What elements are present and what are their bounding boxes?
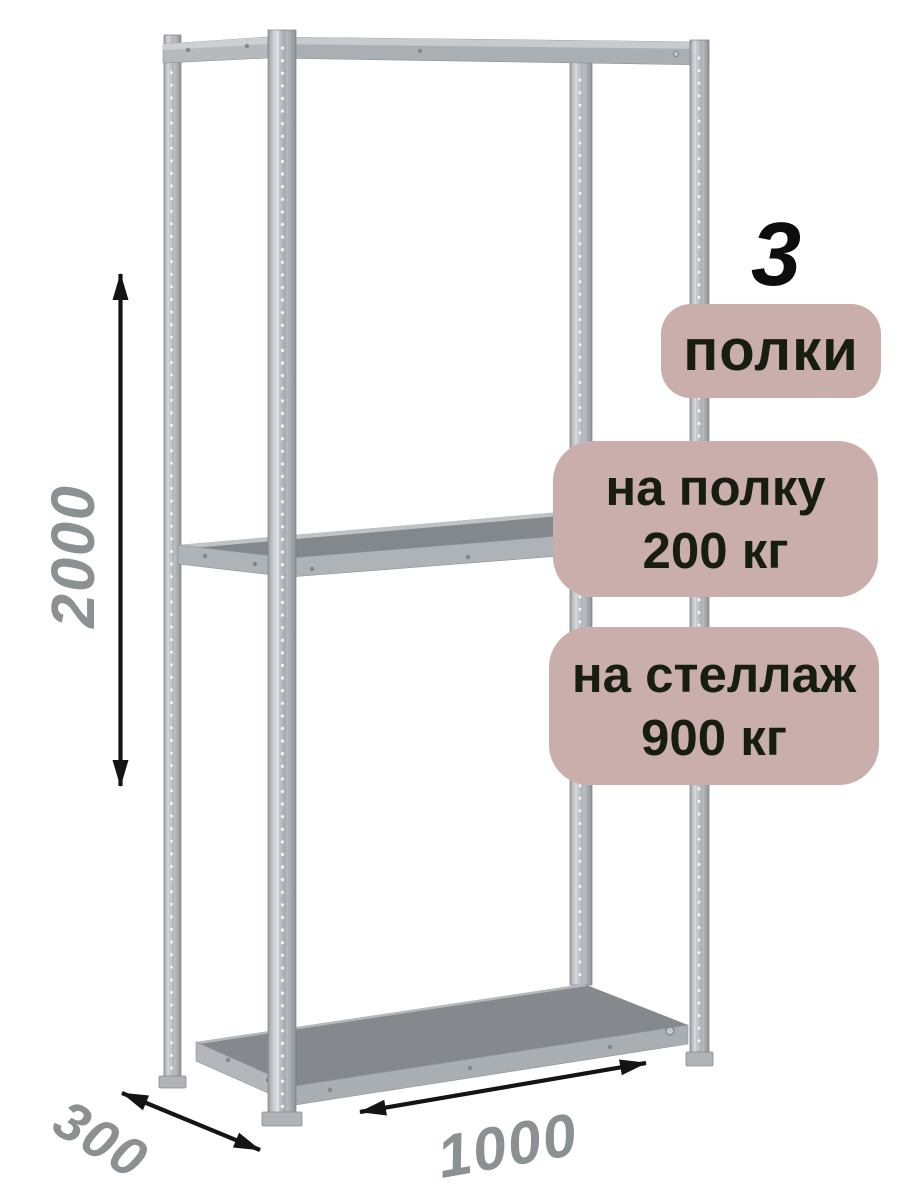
product-image: 3 полки на полку 200 кг на стеллаж 900 к… xyxy=(0,0,900,1200)
per-shelf-load-badge: на полку 200 кг xyxy=(553,441,878,597)
per-shelf-load-line1: на полку xyxy=(553,456,878,519)
rack-illustration xyxy=(0,0,900,1200)
shelf-count-badge: полки xyxy=(661,304,881,398)
post-front-left xyxy=(268,30,296,1125)
per-rack-load-line1: на стеллаж xyxy=(549,643,879,706)
per-rack-load-line2: 900 кг xyxy=(549,706,879,769)
shelf-count-label: полки xyxy=(683,318,859,383)
shelf-count-number: 3 xyxy=(716,210,836,300)
height-dimension-label: 2000 xyxy=(43,465,107,647)
per-rack-load-badge: на стеллаж 900 кг xyxy=(549,627,879,785)
per-shelf-load-line2: 200 кг xyxy=(553,519,878,582)
